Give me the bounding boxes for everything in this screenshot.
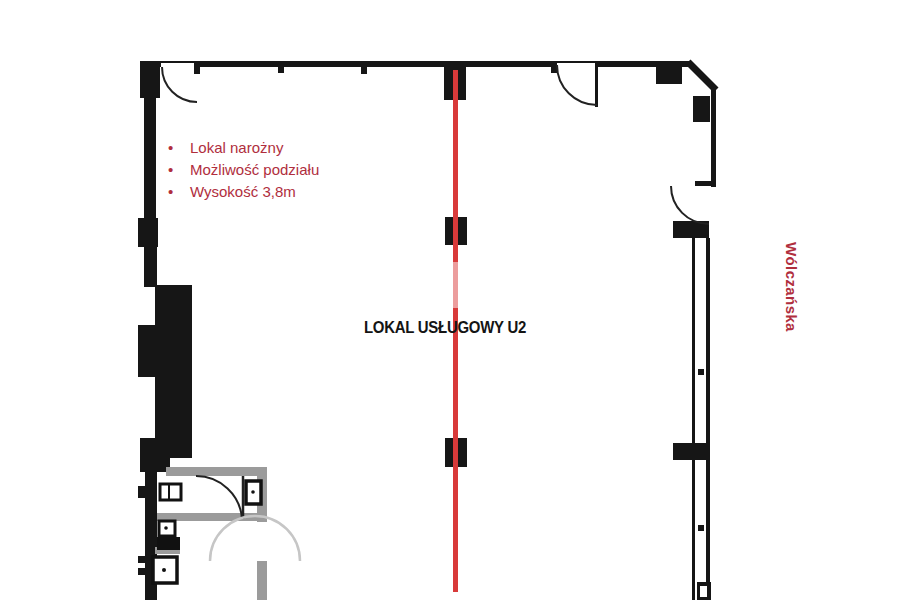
watermark-highlight <box>447 262 465 308</box>
bullet-icon: • <box>168 181 190 203</box>
sanitary-fixtures <box>153 481 261 583</box>
wide-door-swing <box>210 516 300 561</box>
bullet-icon: • <box>168 159 190 181</box>
bullet-icon: • <box>168 137 190 159</box>
feature-item: • Lokal narożny <box>168 137 319 159</box>
feature-item: • Możliwość podziału <box>168 159 319 181</box>
unit-label: LOKAL USŁUGOWY U2 <box>364 318 526 338</box>
feature-item-label: Możliwość podziału <box>190 159 319 181</box>
street-label: Wólczańska <box>783 242 800 332</box>
feature-list: • Lokal narożny • Możliwość podziału • W… <box>168 137 319 203</box>
feature-item-label: Lokal narożny <box>190 137 283 159</box>
glazed-facade <box>692 238 711 600</box>
floor-plan-drawing <box>0 0 900 600</box>
feature-item-label: Wysokość 3,8m <box>190 181 296 203</box>
feature-item: • Wysokość 3,8m <box>168 181 319 203</box>
floor-plan-page: • Lokal narożny • Możliwość podziału • W… <box>0 0 900 600</box>
